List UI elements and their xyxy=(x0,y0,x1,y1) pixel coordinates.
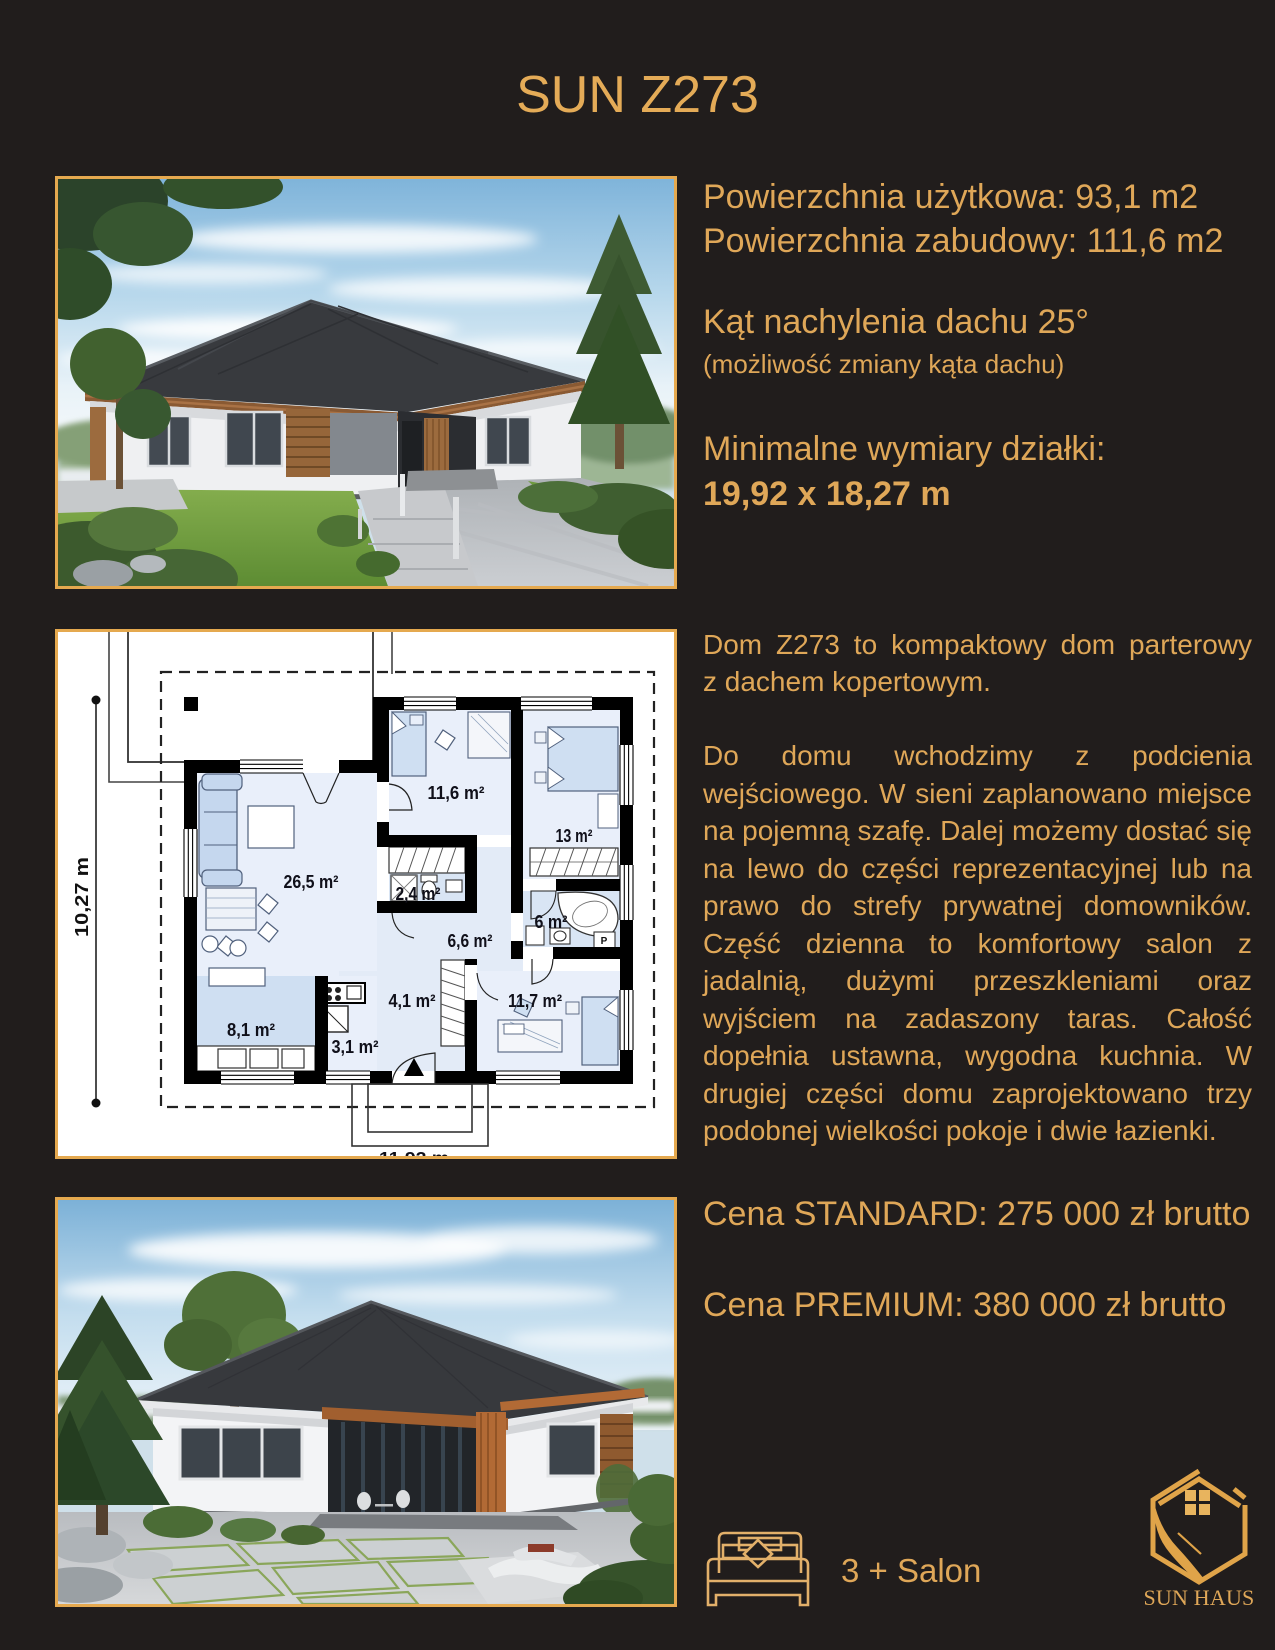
svg-text:6 m²: 6 m² xyxy=(535,912,568,932)
svg-text:11,6 m²: 11,6 m² xyxy=(428,783,485,803)
svg-text:10,27 m: 10,27 m xyxy=(71,857,92,937)
svg-text:P: P xyxy=(601,936,608,947)
svg-text:4,1 m²: 4,1 m² xyxy=(389,991,436,1011)
svg-text:13 m²: 13 m² xyxy=(556,826,593,846)
svg-text:8,1 m²: 8,1 m² xyxy=(227,1020,275,1040)
svg-text:6,6 m²: 6,6 m² xyxy=(448,931,493,951)
svg-text:11,92 m: 11,92 m xyxy=(379,1148,449,1156)
svg-text:11,7 m²: 11,7 m² xyxy=(508,991,562,1011)
svg-text:3,1 m²: 3,1 m² xyxy=(332,1037,379,1057)
svg-text:2,4 m²: 2,4 m² xyxy=(396,884,441,904)
svg-text:26,5 m²: 26,5 m² xyxy=(284,872,339,892)
